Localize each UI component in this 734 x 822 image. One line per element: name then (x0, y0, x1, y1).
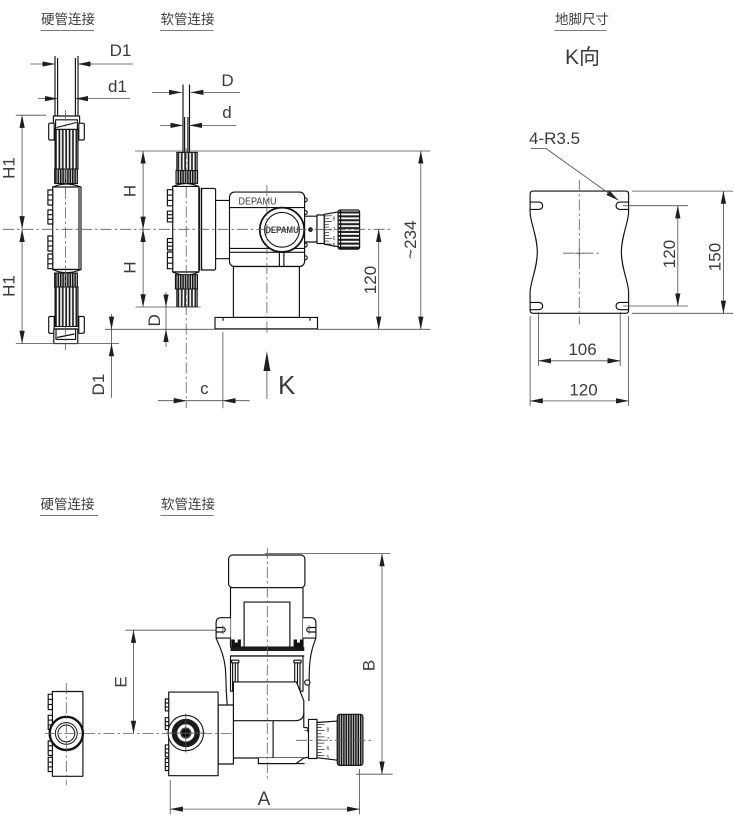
svg-text:D1: D1 (110, 41, 132, 60)
svg-text:软管连接: 软管连接 (161, 496, 215, 512)
svg-text:DEPAMU: DEPAMU (239, 196, 277, 207)
svg-text:6: 6 (333, 236, 336, 242)
svg-text:硬管连接: 硬管连接 (41, 11, 95, 27)
svg-text:8: 8 (327, 728, 330, 734)
svg-text:106: 106 (568, 340, 596, 359)
svg-text:A: A (258, 789, 271, 810)
svg-text:H: H (121, 261, 140, 273)
svg-text:c: c (200, 379, 209, 398)
svg-text:D1: D1 (89, 374, 108, 396)
svg-text:7: 7 (333, 228, 336, 234)
svg-text:5: 5 (327, 755, 330, 761)
svg-text:B: B (360, 660, 379, 671)
svg-text:4-R3.5: 4-R3.5 (529, 129, 580, 148)
svg-text:d: d (222, 103, 231, 122)
svg-text:D: D (221, 71, 233, 90)
svg-text:H: H (121, 185, 140, 197)
svg-text:E: E (112, 676, 131, 687)
svg-text:6: 6 (327, 746, 330, 752)
svg-text:7: 7 (327, 737, 330, 743)
svg-text:H1: H1 (0, 157, 19, 179)
svg-text:120: 120 (361, 266, 380, 294)
svg-text:150: 150 (706, 243, 725, 271)
svg-text:硬管连接: 硬管连接 (41, 496, 95, 512)
svg-text:DEPAMU: DEPAMU (265, 225, 299, 235)
svg-text:120: 120 (569, 381, 597, 400)
svg-text:8: 8 (333, 217, 336, 223)
svg-text:D: D (145, 314, 164, 326)
svg-text:地脚尺寸: 地脚尺寸 (555, 12, 609, 27)
svg-text:120: 120 (660, 240, 679, 268)
svg-text:K向: K向 (565, 46, 600, 69)
svg-text:5: 5 (333, 243, 336, 249)
svg-text:d1: d1 (108, 77, 127, 96)
svg-text:软管连接: 软管连接 (161, 11, 215, 27)
svg-text:~234: ~234 (401, 221, 420, 259)
svg-text:H1: H1 (0, 275, 19, 297)
svg-text:K: K (278, 370, 296, 400)
